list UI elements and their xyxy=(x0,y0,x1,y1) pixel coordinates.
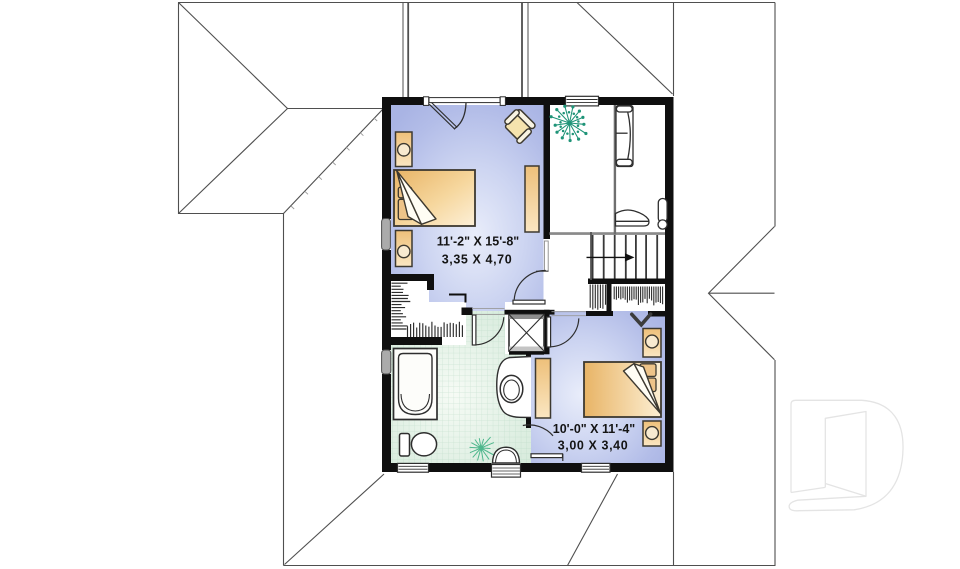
svg-text:3,00 X 3,40: 3,00 X 3,40 xyxy=(558,439,629,453)
svg-text:10'-0" X 11'-4": 10'-0" X 11'-4" xyxy=(553,422,636,436)
svg-text:11'-2" X 15'-8": 11'-2" X 15'-8" xyxy=(437,235,520,249)
svg-text:3,35 X 4,70: 3,35 X 4,70 xyxy=(442,253,513,267)
